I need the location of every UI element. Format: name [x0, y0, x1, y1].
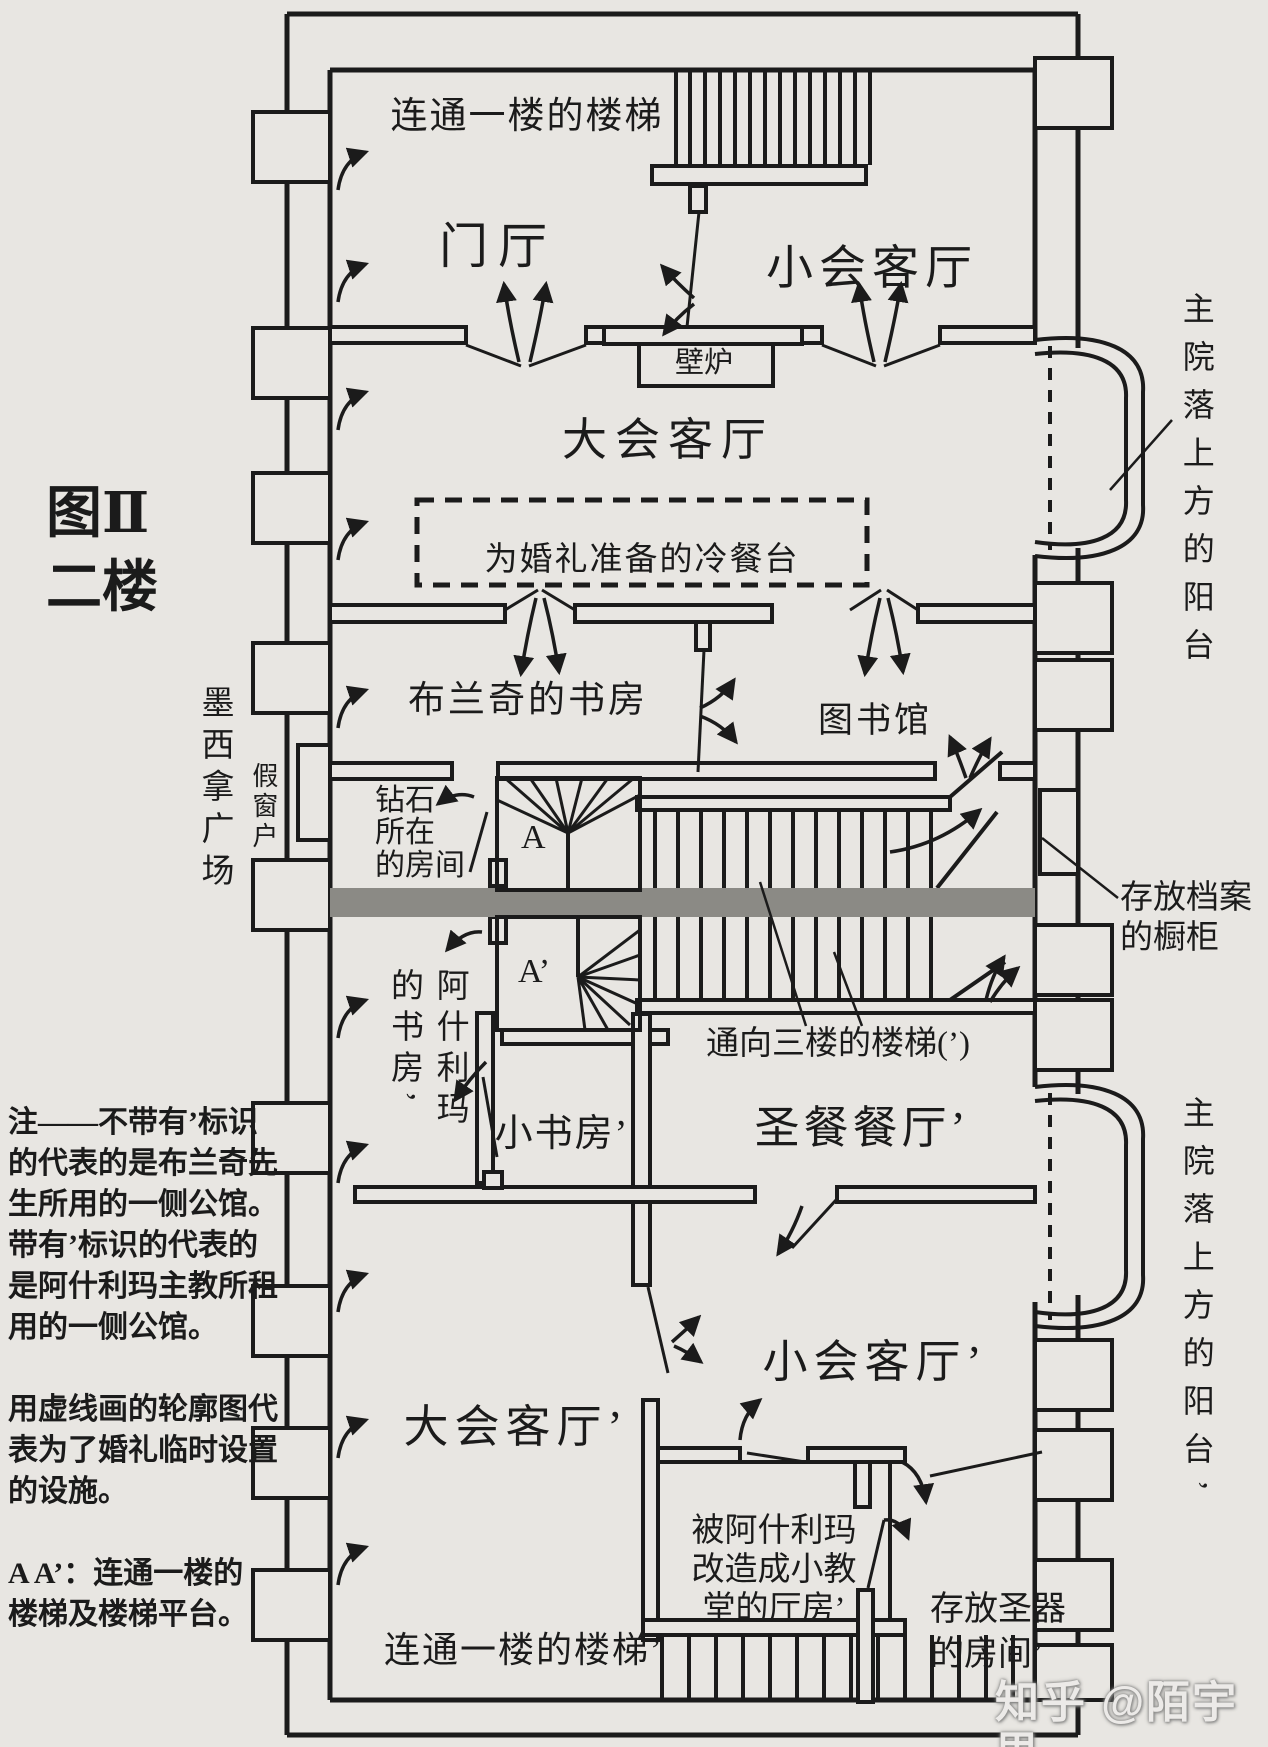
fireplace-label: 壁炉 [675, 347, 733, 380]
landing-a-prime-label: A’ [518, 952, 550, 991]
landing-a-label: A [521, 818, 546, 857]
stairs-third-label: 通向三楼的楼梯(’) [706, 1026, 970, 1064]
balcony-top-label: 主院落上方的阳台 [1178, 292, 1215, 676]
room-chapel: 被阿什利玛 改造成小教 堂的厅房’ [692, 1512, 857, 1629]
watermark: 知乎 @陌宇思 [995, 1678, 1268, 1747]
figure-page: 图Ⅱ 二楼 连通一楼的楼梯 门厅 小会客厅 壁炉 大会客厅 为婚礼准备的冷餐台 … [0, 0, 1268, 1747]
messina-square-label: 墨西拿广场 [194, 685, 232, 895]
fake-window-label: 假窗户 [248, 762, 278, 852]
room-diamond: 钻石 所在 的房间 [375, 785, 465, 882]
room-ashlima-study: 阿什利玛 的书房’ [380, 968, 471, 1132]
balcony-top [1035, 338, 1143, 558]
room-sacristy: 存放圣器 的房间’ [930, 1588, 1066, 1678]
figure-title: 图Ⅱ 二楼 [46, 478, 158, 626]
room-library: 图书馆 [818, 701, 932, 741]
landing-band [330, 888, 1035, 917]
room-grand-parlor-prime: 大会客厅’ [404, 1402, 629, 1454]
spiral-stair-a [497, 778, 640, 890]
balcony-bottom [1035, 1085, 1143, 1328]
legend-note: 注——不带有’标识 的代表的是布兰奇先 生所用的一侧公馆。 带有’标识的代表的 … [8, 1102, 300, 1635]
fake-window-block [298, 745, 330, 840]
staircase-top [652, 72, 870, 184]
room-small-parlor-prime: 小会客厅’ [763, 1337, 988, 1389]
wedding-buffet-label: 为婚礼准备的冷餐台 [485, 542, 800, 580]
room-blanche-study: 布兰奇的书房 [408, 680, 648, 723]
room-small-study: 小书房’ [495, 1113, 630, 1157]
room-communion-dining: 圣餐餐厅’ [755, 1103, 970, 1155]
balcony-bottom-label: 主院落上方的阳台’ [1178, 1096, 1215, 1507]
stairs-top-label: 连通一楼的楼梯 [391, 96, 664, 139]
stairs-bottom-label: 连通一楼的楼梯’ [384, 1630, 664, 1671]
room-entrance-hall: 门厅 [439, 219, 557, 275]
archive-cabinet-label: 存放档案 的橱柜 [1120, 878, 1252, 959]
room-small-parlor: 小会客厅 [766, 242, 978, 296]
room-grand-parlor: 大会客厅 [562, 415, 774, 467]
